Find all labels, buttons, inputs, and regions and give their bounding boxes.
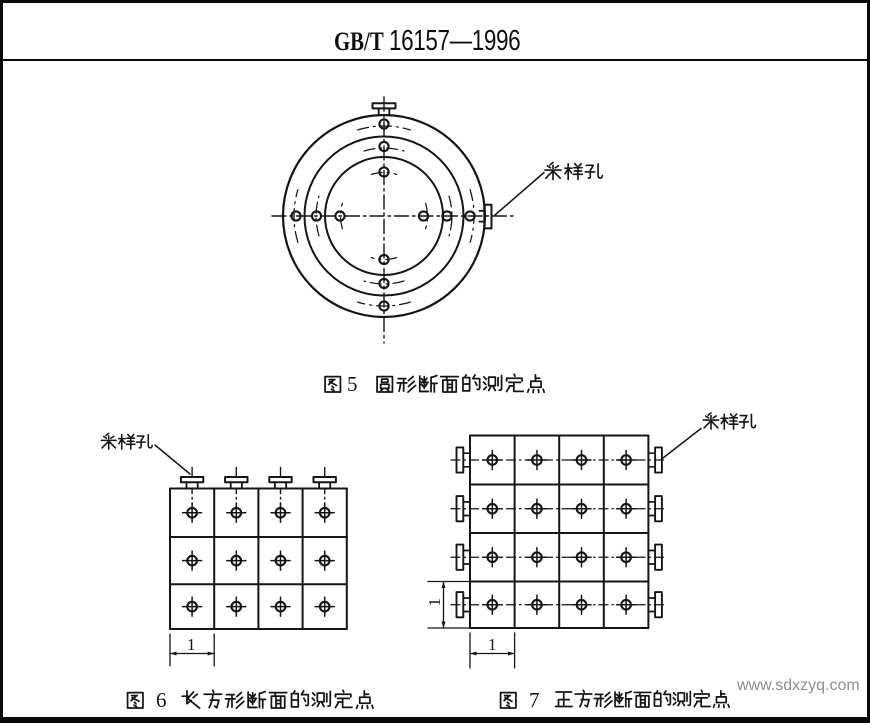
svg-text:7: 7	[529, 688, 540, 712]
svg-text:6: 6	[156, 688, 167, 712]
svg-text:1: 1	[425, 598, 444, 607]
svg-text:1: 1	[488, 635, 497, 654]
svg-text:5: 5	[347, 372, 358, 396]
svg-text:1: 1	[187, 635, 196, 654]
